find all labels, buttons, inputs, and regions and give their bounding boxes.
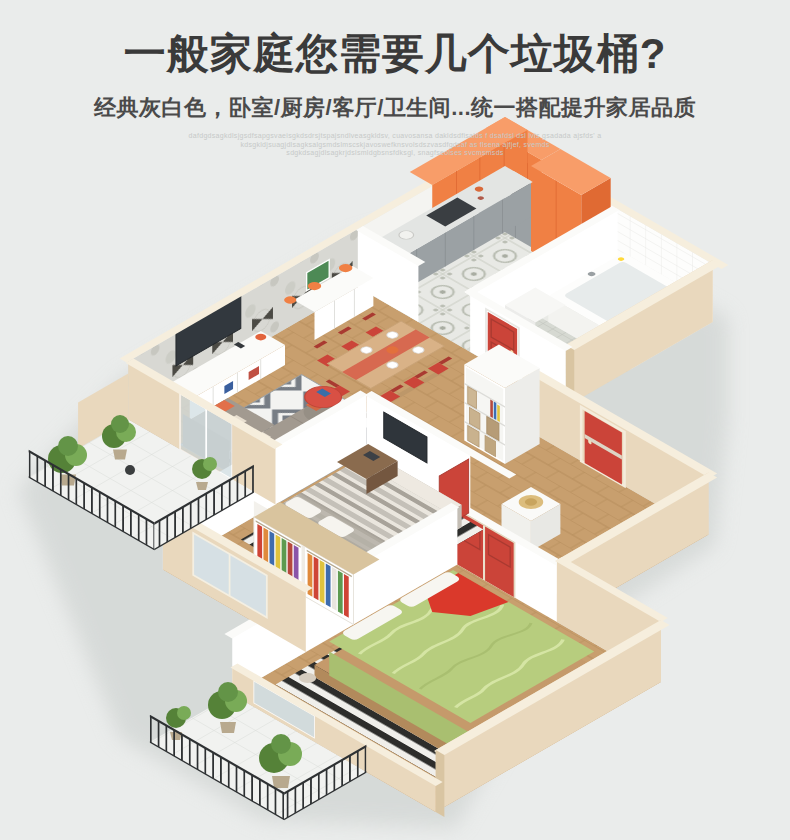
page-subtitle: 经典灰白色，卧室/厨房/客厅/卫生间...统一搭配提升家居品质 xyxy=(0,93,790,123)
iron-chair xyxy=(125,465,135,475)
watermark-line: dafdgdsagkdlsjgsdfsapgsvaeisgkdsdrsjtspa… xyxy=(0,132,790,141)
watermark-line: sdgkdsagjdlsagkrjdslsmldgbsnsfdksgl, sna… xyxy=(0,149,790,158)
watermark: dafdgdsagkdlsjgsdfsapgsvaeisgkdsdrsjtspa… xyxy=(0,132,790,158)
page-title: 一般家庭您需要几个垃圾桶? xyxy=(0,0,790,82)
watermark-line: kdsgkldjsuagjdlsagksalgsmdslmscskjavoswe… xyxy=(0,141,790,150)
header: 一般家庭您需要几个垃圾桶? 经典灰白色，卧室/厨房/客厅/卫生间...统一搭配提… xyxy=(0,0,790,158)
